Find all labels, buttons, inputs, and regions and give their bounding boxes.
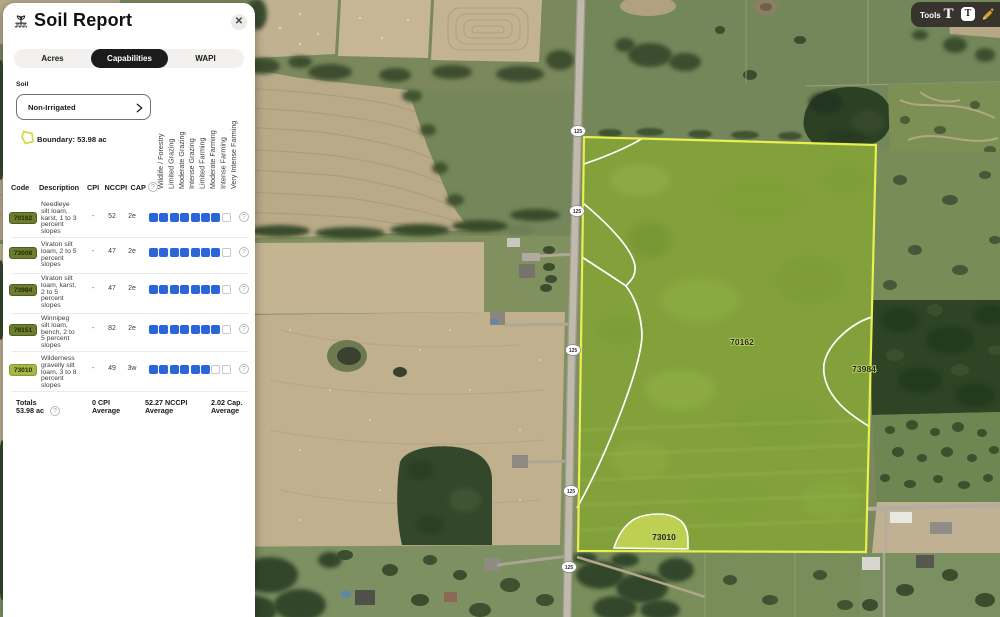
svg-text:Intense Grazing: Intense Grazing xyxy=(187,138,196,189)
svg-text:70162: 70162 xyxy=(730,337,754,347)
svg-text:Intense Farming: Intense Farming xyxy=(218,137,227,189)
svg-text:125: 125 xyxy=(569,348,578,354)
svg-text:125: 125 xyxy=(567,489,576,495)
svg-text:Moderate Farming: Moderate Farming xyxy=(208,130,217,189)
svg-text:Limited Farming: Limited Farming xyxy=(198,137,207,189)
svg-text:125: 125 xyxy=(565,565,574,571)
svg-text:Moderate Grazing: Moderate Grazing xyxy=(177,131,186,189)
svg-text:73010: 73010 xyxy=(652,532,676,542)
svg-text:Limited Grazing: Limited Grazing xyxy=(166,139,175,189)
svg-text:Wildlife / Forestry: Wildlife / Forestry xyxy=(156,133,165,189)
svg-text:125: 125 xyxy=(574,129,583,135)
svg-text:Very Intense Farming: Very Intense Farming xyxy=(229,121,238,189)
svg-text:125: 125 xyxy=(573,209,582,215)
svg-text:73984: 73984 xyxy=(852,364,876,374)
